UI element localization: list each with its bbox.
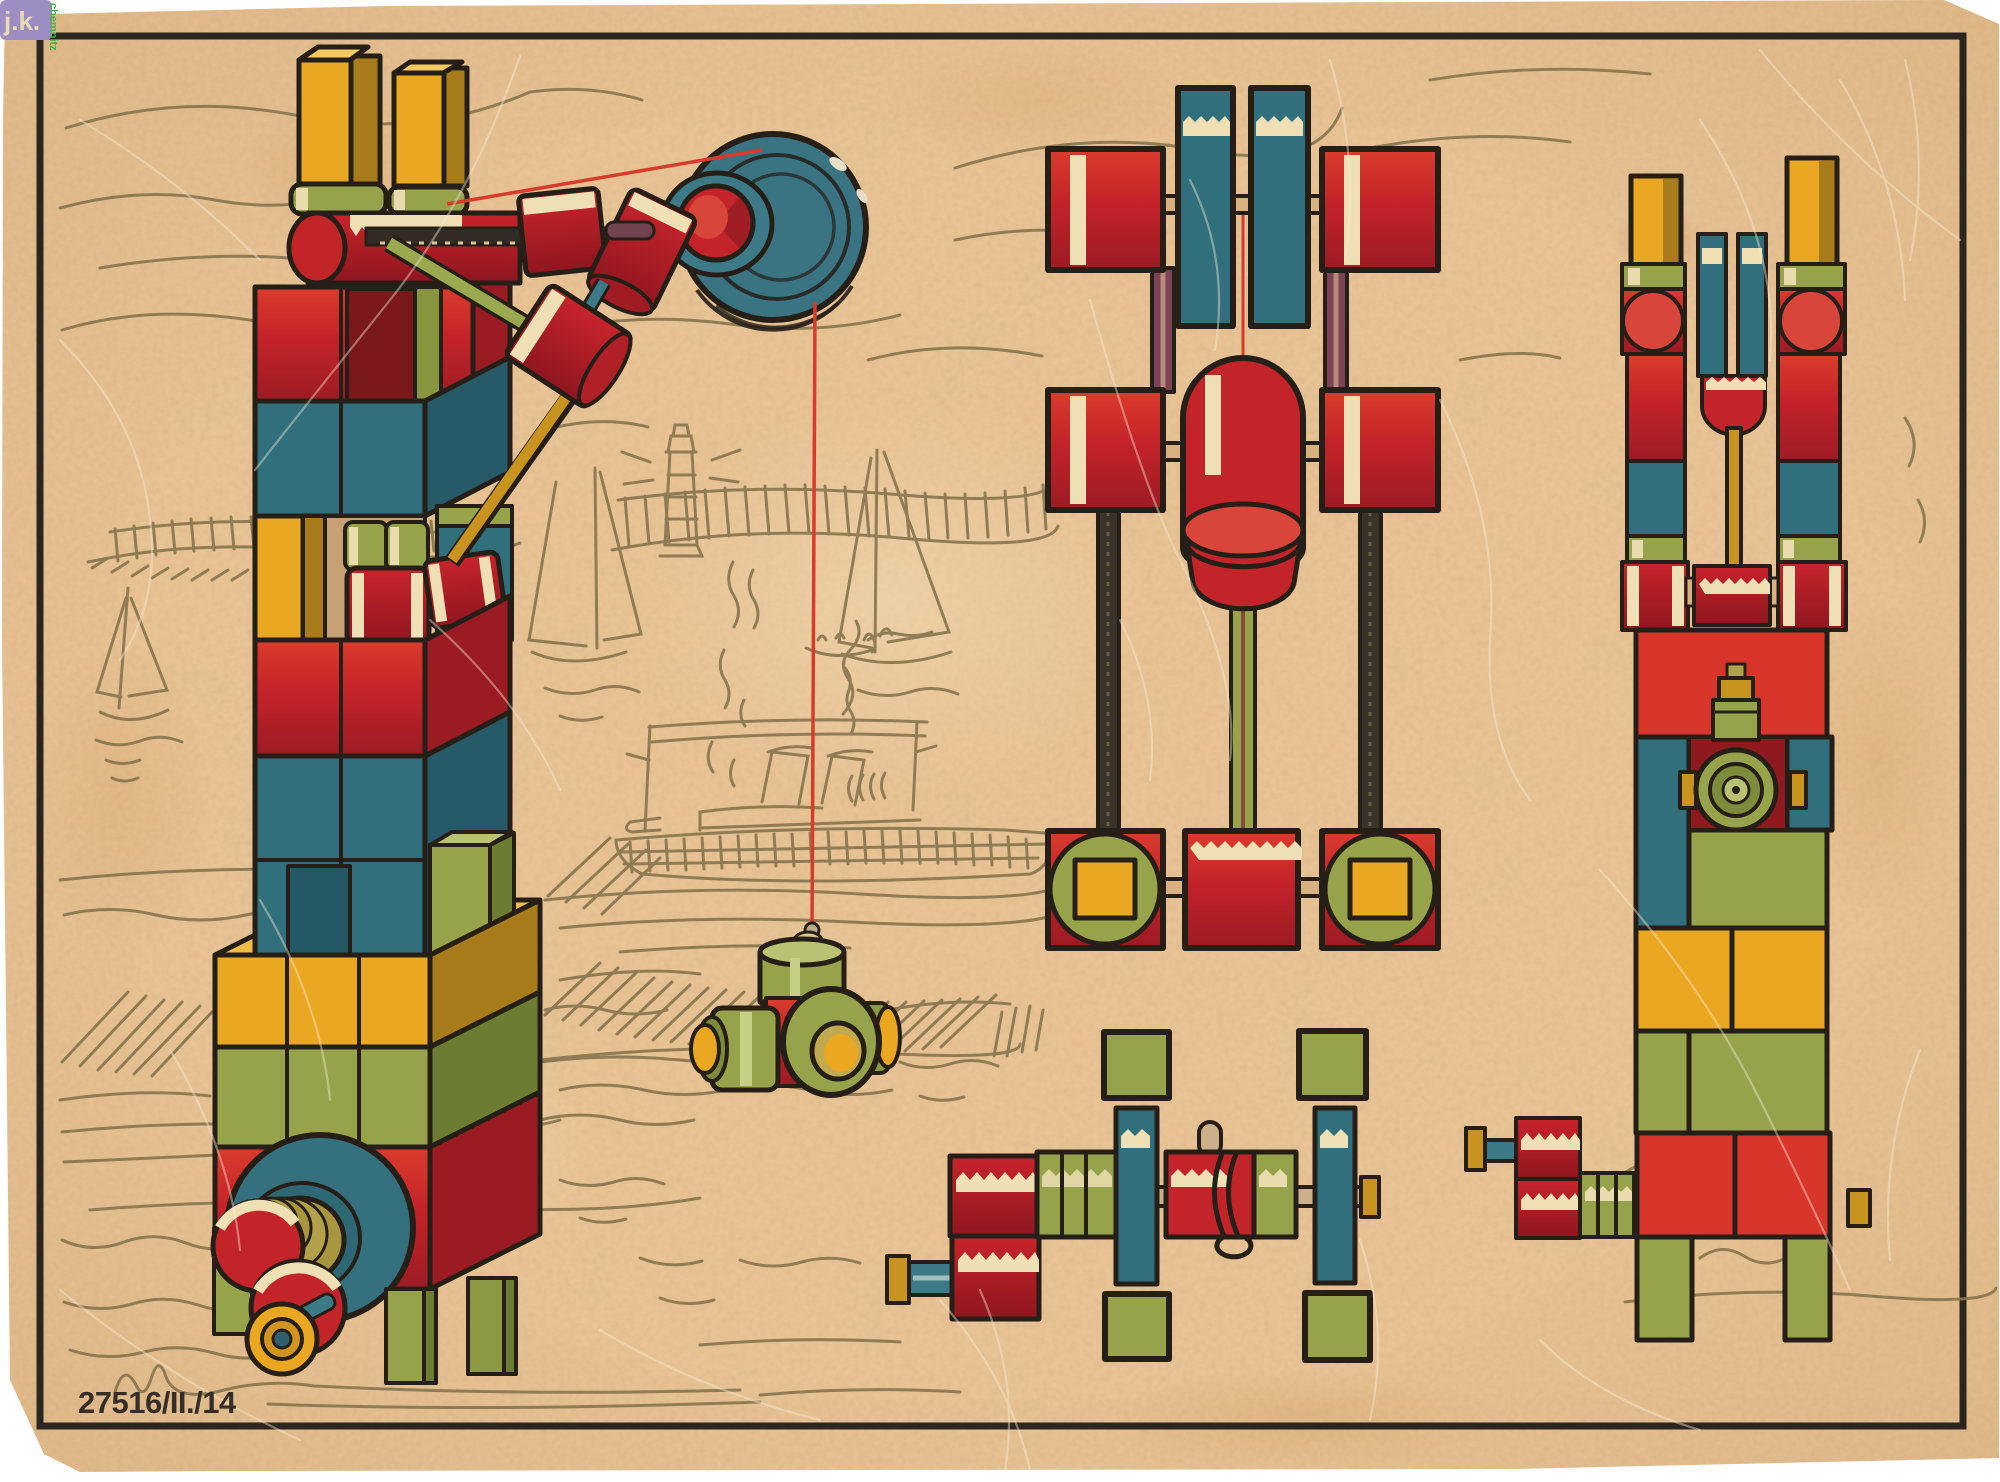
svg-text:j.k.: j.k.	[3, 6, 40, 36]
svg-text:chemnitz: chemnitz	[47, 3, 59, 51]
svg-text:27516/II./14: 27516/II./14	[78, 1385, 237, 1420]
